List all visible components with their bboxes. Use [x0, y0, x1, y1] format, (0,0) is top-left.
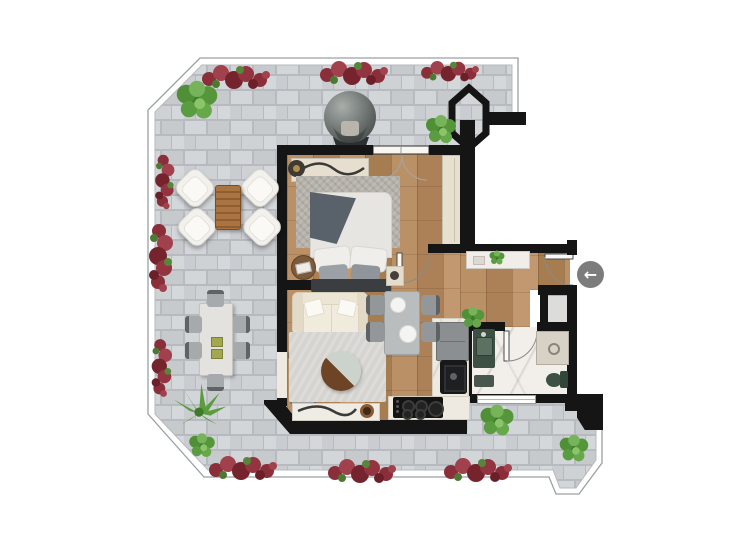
plant [490, 251, 505, 265]
plant [462, 307, 485, 328]
floor-plan-canvas: ← [0, 0, 740, 555]
entry-arrow: ← [577, 261, 604, 288]
entry-arrow-glyph: ← [584, 267, 597, 283]
decor-layer [0, 0, 740, 555]
dresser-sculpture [302, 164, 364, 175]
console-sculpture [298, 407, 356, 416]
